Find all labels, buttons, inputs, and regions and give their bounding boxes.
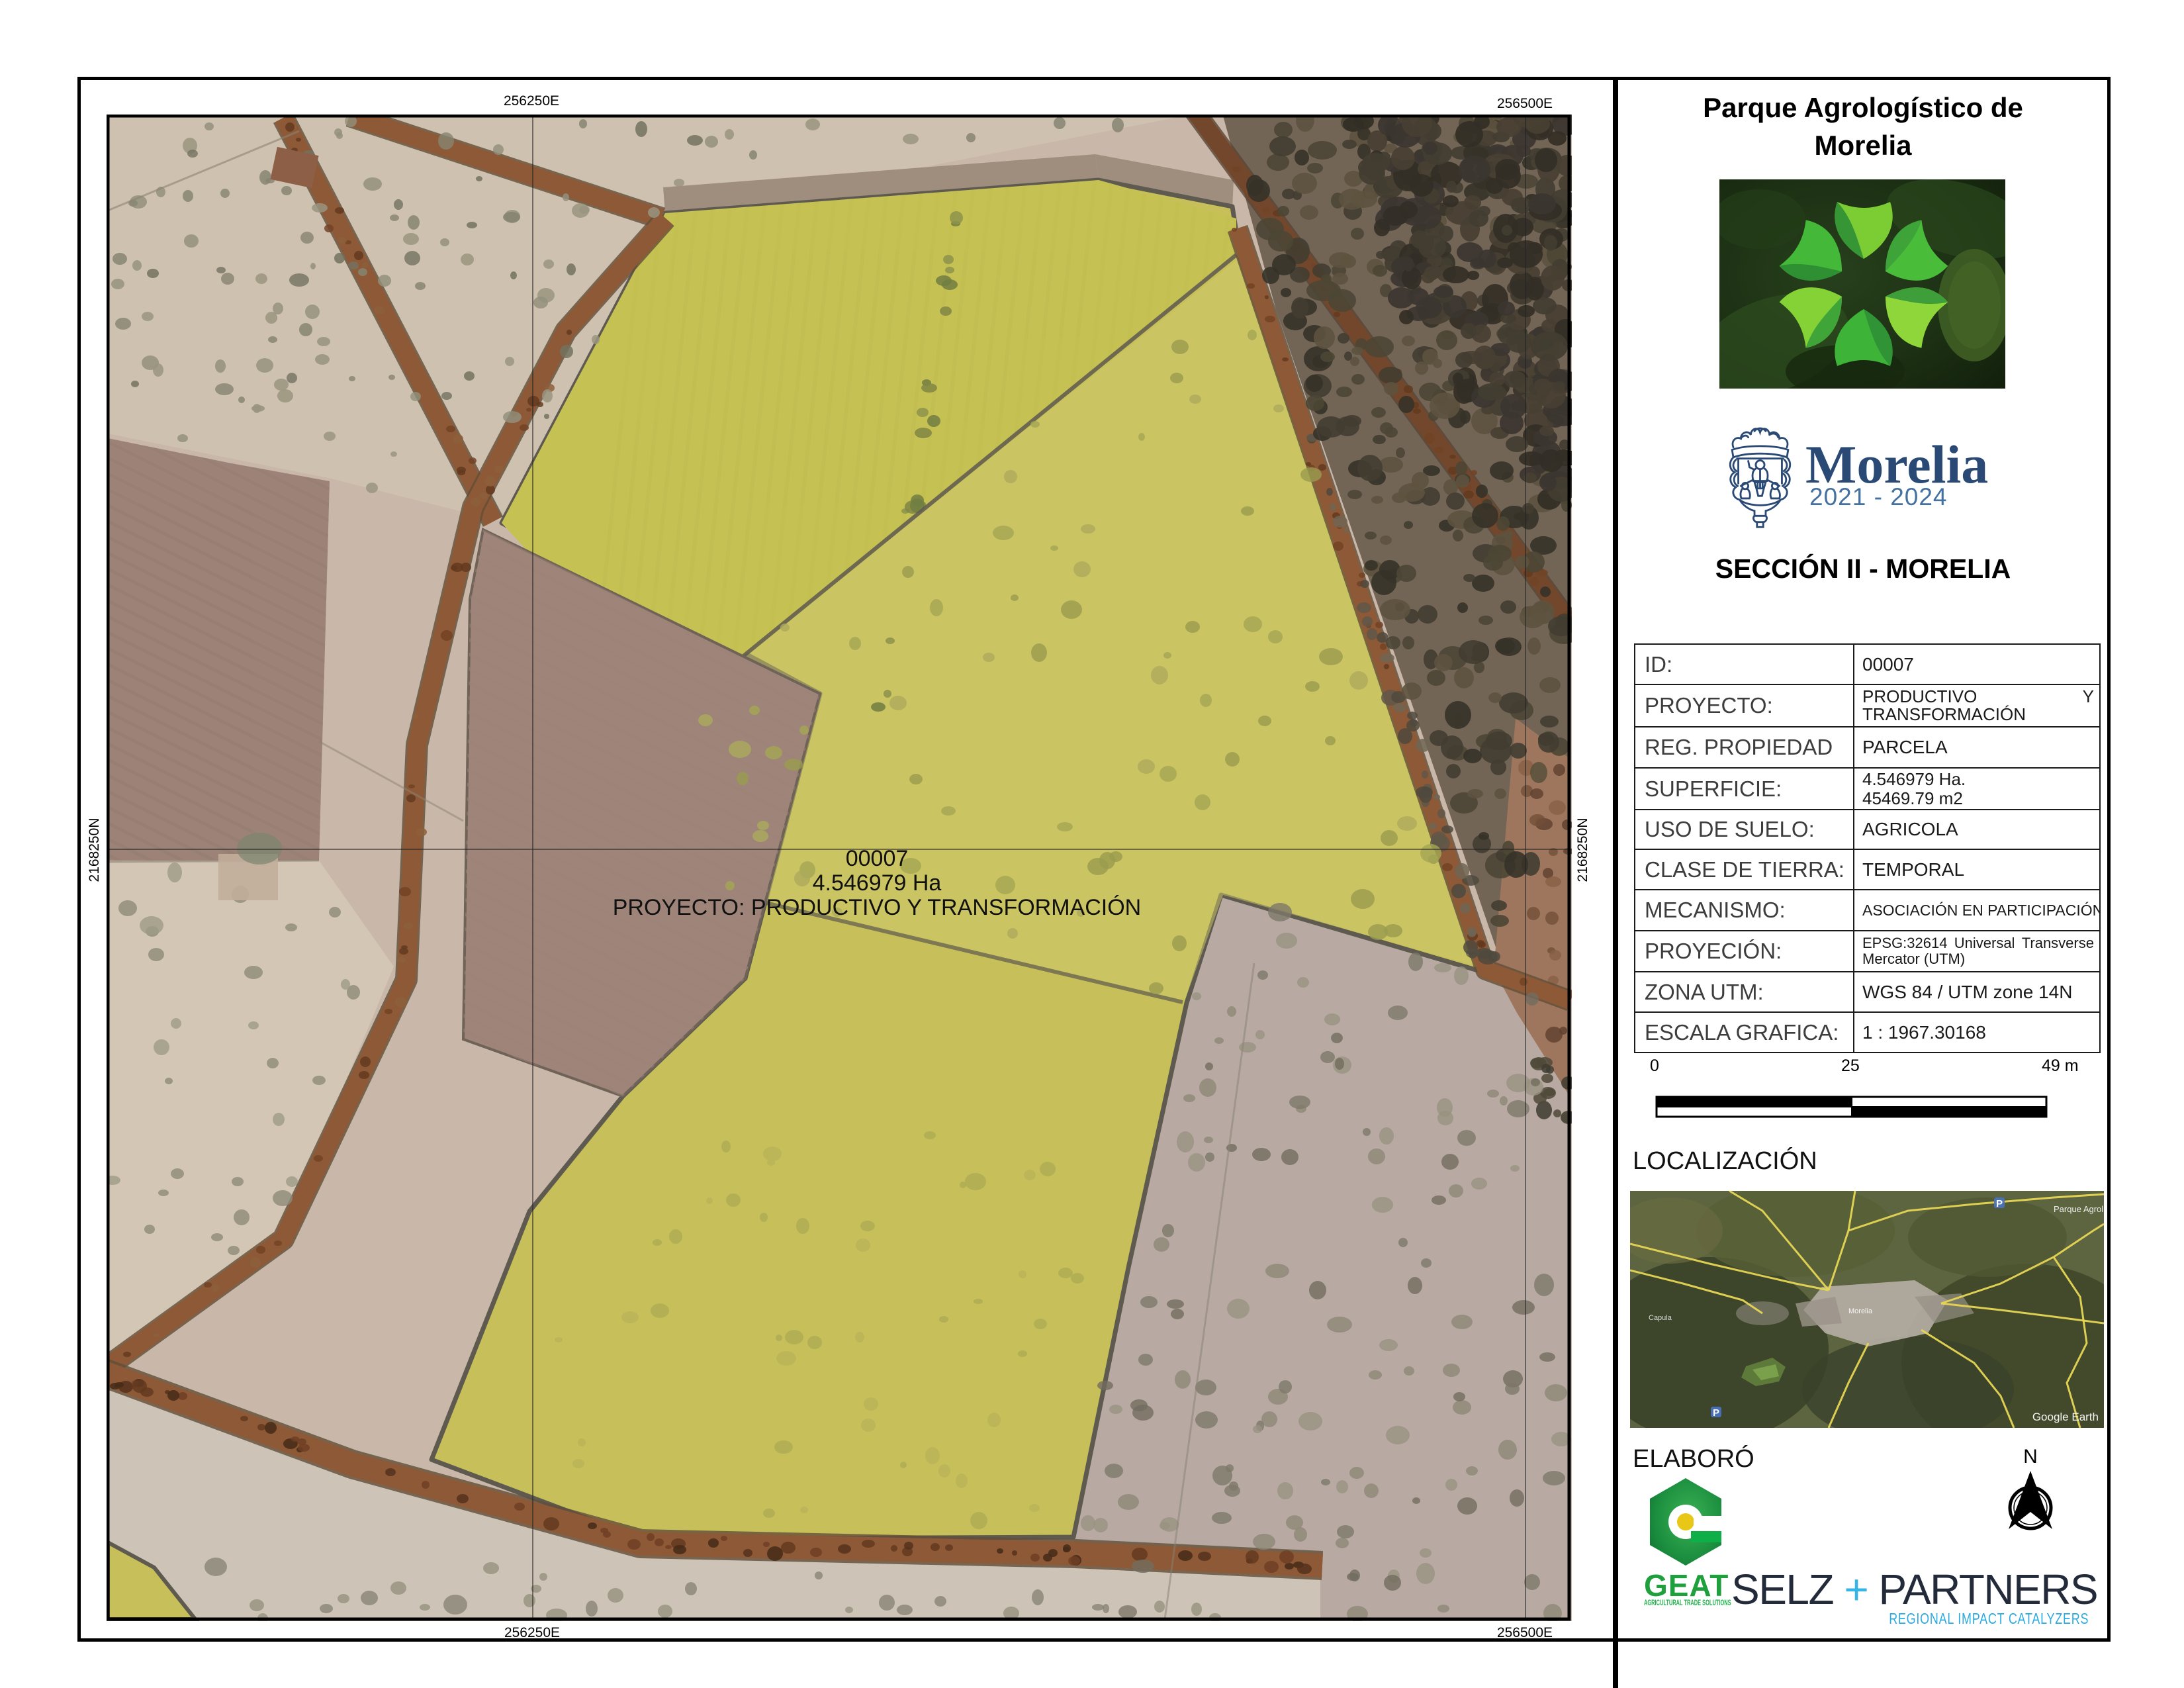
svg-text:Google Earth: Google Earth (2032, 1411, 2099, 1423)
svg-text:4.546979 Ha: 4.546979 Ha (813, 870, 942, 896)
svg-text:00007: 00007 (846, 846, 909, 871)
svg-text:Parque Agrol...: Parque Agrol... (2054, 1204, 2104, 1214)
svg-text:Morelia: Morelia (1848, 1307, 1873, 1315)
svg-text:PROYECTO: PRODUCTIVO Y TRANSFO: PROYECTO: PRODUCTIVO Y TRANSFORMACIÓN (613, 895, 1142, 920)
svg-text:P: P (1996, 1198, 2003, 1209)
svg-text:Capula: Capula (1649, 1314, 1672, 1322)
svg-text:P: P (1713, 1407, 1719, 1419)
